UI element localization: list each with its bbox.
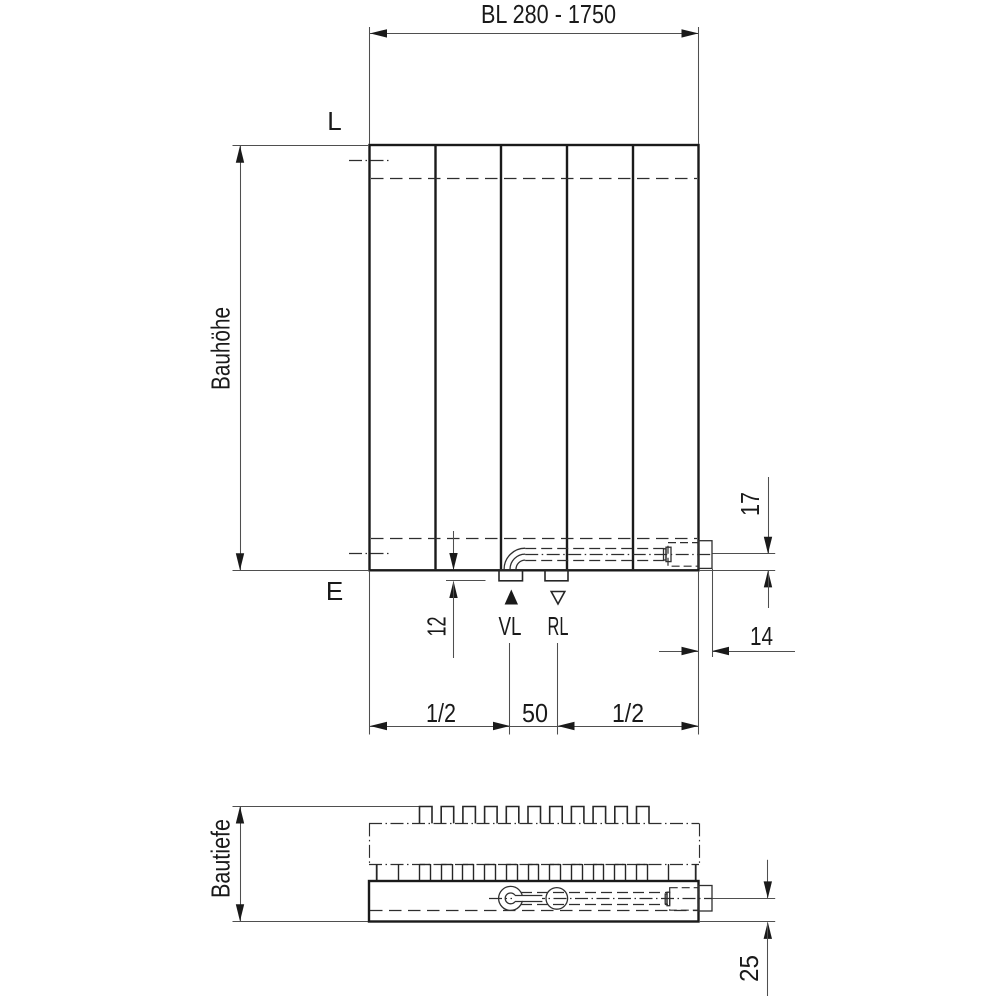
svg-text:12: 12 (422, 617, 452, 637)
svg-text:17: 17 (735, 492, 765, 516)
svg-text:25: 25 (734, 955, 764, 982)
svg-text:50: 50 (522, 698, 548, 728)
svg-text:VL: VL (499, 611, 522, 641)
svg-text:Bauhöhe: Bauhöhe (206, 307, 236, 390)
svg-text:L: L (327, 106, 341, 136)
svg-text:Bautiefe: Bautiefe (206, 819, 236, 898)
svg-text:14: 14 (750, 621, 773, 651)
svg-text:BL 280 - 1750: BL 280 - 1750 (481, 0, 616, 29)
svg-text:E: E (326, 576, 343, 606)
svg-text:1/2: 1/2 (612, 698, 644, 728)
svg-text:1/2: 1/2 (426, 698, 456, 728)
svg-text:RL: RL (548, 611, 569, 641)
